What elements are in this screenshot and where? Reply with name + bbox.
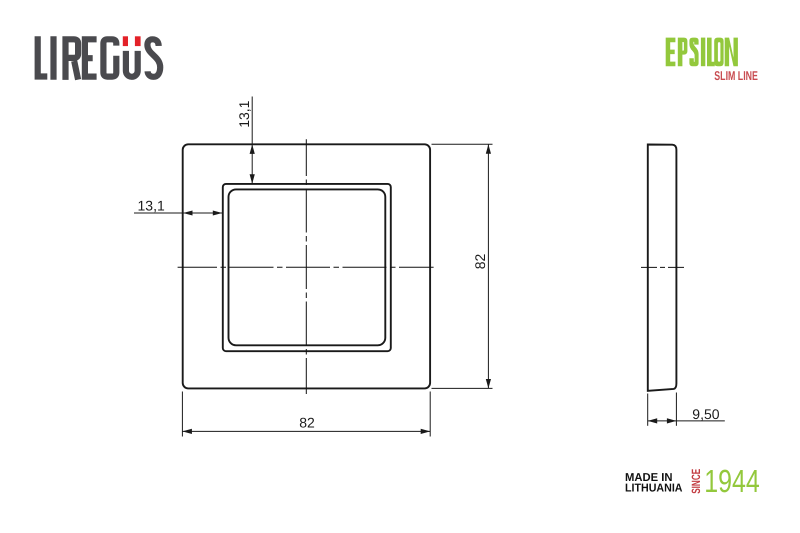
svg-text:SLIM LINE: SLIM LINE <box>714 68 758 83</box>
svg-text:LITHUANIA: LITHUANIA <box>625 482 683 494</box>
svg-text:82: 82 <box>299 415 315 431</box>
svg-text:SINCE: SINCE <box>689 469 703 494</box>
svg-text:1944: 1944 <box>704 463 760 499</box>
svg-text:13,1: 13,1 <box>138 198 165 214</box>
svg-text:13,1: 13,1 <box>236 100 252 127</box>
svg-text:82: 82 <box>472 254 488 270</box>
svg-text:9,50: 9,50 <box>692 406 719 422</box>
